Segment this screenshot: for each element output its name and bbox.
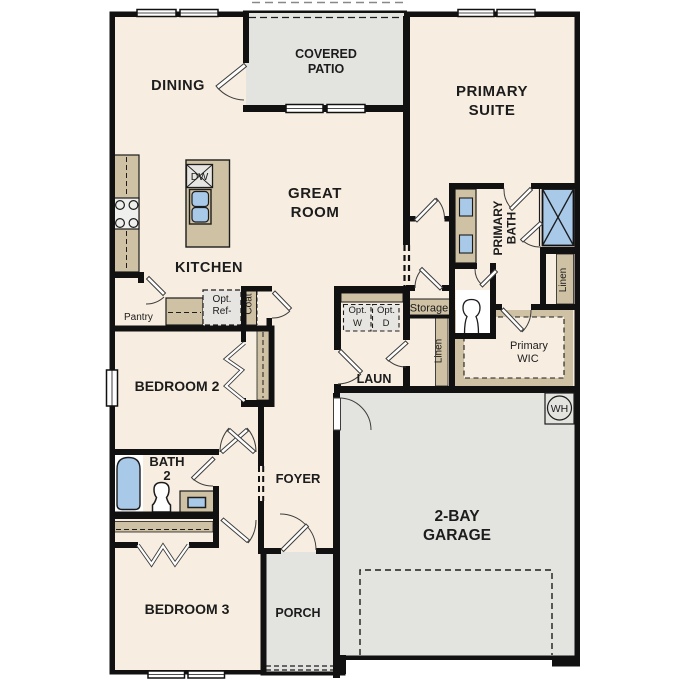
svg-text:Storage: Storage	[410, 303, 449, 315]
svg-text:Linen: Linen	[558, 268, 569, 292]
svg-text:LAUN: LAUN	[357, 372, 392, 386]
svg-text:PORCH: PORCH	[275, 606, 320, 620]
svg-text:D: D	[383, 318, 390, 329]
svg-text:GARAGE: GARAGE	[423, 527, 491, 544]
svg-text:Pantry: Pantry	[124, 312, 153, 323]
svg-text:KITCHEN: KITCHEN	[175, 260, 243, 276]
svg-text:SUITE: SUITE	[469, 102, 516, 119]
svg-text:ROOM: ROOM	[291, 204, 340, 221]
svg-text:Opt.: Opt.	[349, 305, 367, 316]
svg-text:W: W	[353, 318, 362, 329]
svg-text:DINING: DINING	[151, 78, 205, 94]
svg-text:2: 2	[163, 468, 170, 483]
svg-text:Linen: Linen	[434, 339, 445, 363]
svg-text:GREAT: GREAT	[288, 185, 342, 202]
svg-text:Opt.: Opt.	[213, 294, 232, 305]
svg-text:Primary: Primary	[510, 340, 548, 352]
svg-text:Opt.: Opt.	[377, 305, 395, 316]
svg-text:PRIMARY: PRIMARY	[491, 201, 505, 256]
svg-text:BATH: BATH	[505, 212, 519, 244]
svg-text:COVERED: COVERED	[295, 47, 357, 61]
svg-text:BEDROOM 2: BEDROOM 2	[135, 378, 220, 394]
svg-text:BEDROOM 3: BEDROOM 3	[145, 601, 230, 617]
svg-text:PRIMARY: PRIMARY	[456, 83, 528, 100]
svg-text:2-BAY: 2-BAY	[434, 508, 480, 525]
svg-text:WH: WH	[551, 403, 569, 415]
svg-text:PATIO: PATIO	[308, 62, 345, 76]
svg-text:FOYER: FOYER	[276, 471, 321, 486]
svg-text:Ref-: Ref-	[213, 306, 232, 317]
svg-text:BATH: BATH	[149, 454, 184, 469]
svg-text:DW: DW	[191, 171, 209, 183]
svg-text:WIC: WIC	[517, 353, 538, 365]
